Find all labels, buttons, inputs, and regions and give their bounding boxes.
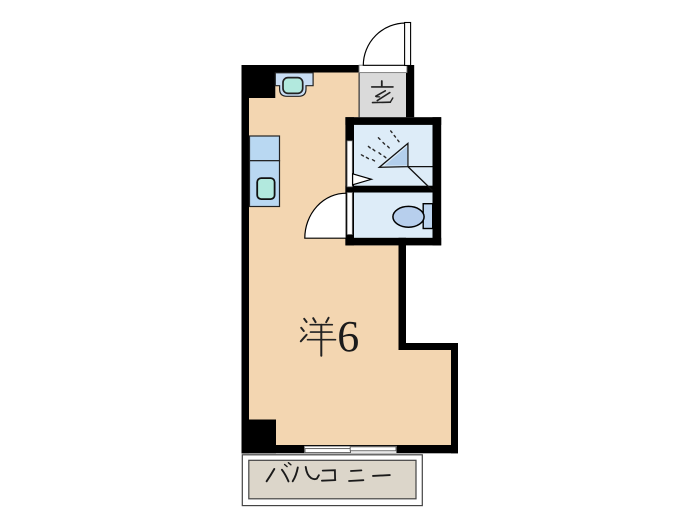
svg-text:6: 6 — [337, 312, 359, 361]
